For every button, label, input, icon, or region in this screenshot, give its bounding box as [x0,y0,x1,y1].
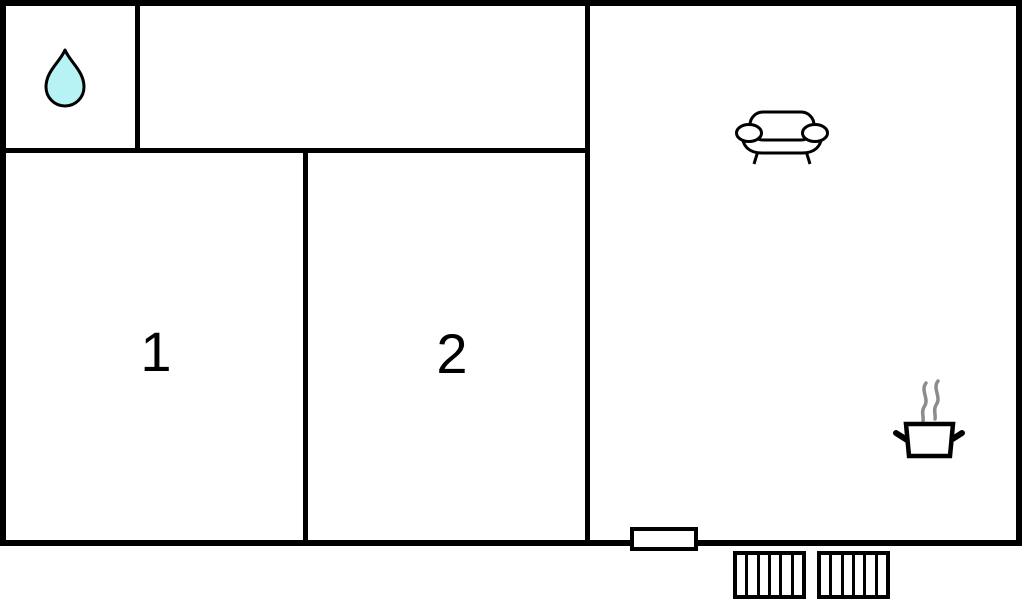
wall-bathroom-right [135,0,140,153]
stair-tread [737,555,745,595]
stair-tread [866,555,874,595]
sofa-armrest-left [737,125,762,142]
stair-tread [844,555,852,595]
steam-line-icon [935,381,938,419]
water-drop-shape [46,50,84,106]
floor-plan: 1 2 [0,0,1024,603]
wall-between-room1-room2 [303,148,308,546]
cooking-pot-icon [891,377,967,461]
wall-hall-bottom [0,148,590,153]
outer-wall-right [1016,0,1022,546]
steam-line-icon [923,383,926,421]
stair-tread [832,555,840,595]
stair-tread [855,555,863,595]
stair-tread [794,555,802,595]
stair-tread [748,555,756,595]
room-2-label: 2 [412,322,492,386]
stairs-left [733,551,806,599]
pot-body [906,424,953,456]
window-marker [630,527,698,551]
outer-wall-left [0,0,6,546]
outer-wall-bottom [0,540,1022,546]
stair-tread [771,555,779,595]
sofa-icon [734,106,830,170]
room-1-label: 1 [116,320,196,384]
water-drop-icon [43,47,87,109]
stair-tread [878,555,886,595]
stair-tread [821,555,829,595]
wall-living-room-left [585,0,590,546]
stair-tread [760,555,768,595]
sofa-armrest-right [803,125,828,142]
stairs-right [817,551,890,599]
stair-tread [782,555,790,595]
outer-wall-top [0,0,1022,6]
